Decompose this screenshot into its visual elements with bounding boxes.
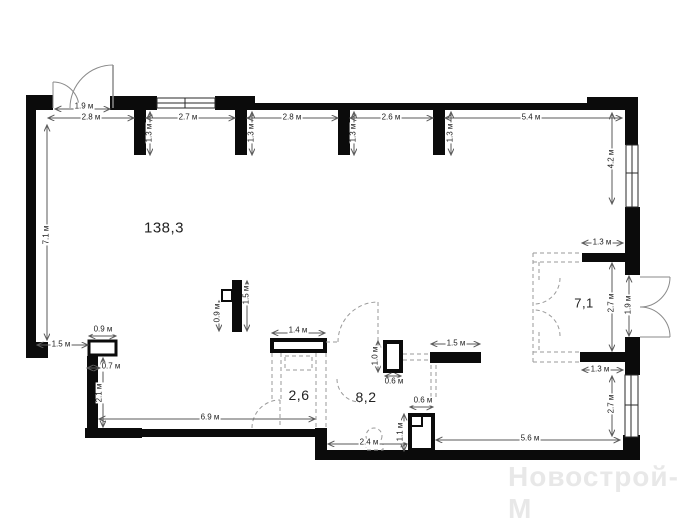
wall-bottom-right [318,450,640,460]
pillar-bottom-box [411,416,422,426]
pillar-center-box [222,290,232,301]
room-area-label-main: 138,3 [144,220,184,237]
wall-stub-4 [433,108,445,155]
floor-plan: 1.9 м 2.8 м 2.7 м 2.8 м 2.6 м 5.4 м 1.3 … [0,0,700,525]
wall-left-bottom-block [26,342,48,358]
pillar-mid [385,342,401,371]
outlined-walls-layer [89,290,433,450]
dimension-label: 1.5 м [243,285,252,306]
dimension-label: 1.3 м [146,123,155,144]
dimension-label: 1.1 м [397,422,406,443]
dimension-label: 5.4 м [521,114,542,123]
dimension-label: 1.9 м [625,295,634,316]
dimension-label: 5.6 м [520,435,541,444]
dimension-label: 4.2 м [608,149,617,170]
wall-stub-2 [235,108,247,155]
wall-top-right-block [587,97,638,110]
dimension-label: 2.8 м [282,114,303,123]
dimension-label: 0.9 м [214,303,223,324]
wall-stub-right-upper [582,253,625,262]
dimension-label: 2.7 м [178,114,199,123]
wall-bottom-left-block [85,428,142,438]
dashed-bathroom-door [252,400,280,428]
window-top [157,98,215,108]
floor-plan-canvas [0,0,700,525]
dimension-label: 2.8 м [81,114,102,123]
wall-left [26,110,36,342]
dimension-label: 0.9 м [93,326,114,335]
dimension-label: 1.5 м [446,340,467,349]
dimension-label: 1.9 м [74,103,95,112]
wall-mid-right [430,352,481,363]
dimension-label: 0.6 м [384,378,405,387]
window-right-lower [625,375,638,437]
window-right-upper [626,145,638,207]
room-area-label-hall: 8,2 [356,389,377,405]
dimension-label: 7.1 м [43,225,52,246]
wall-bottom-left [142,429,318,437]
wall-bathroom-1-4m [272,340,325,351]
dimension-label: 0.6 м [413,397,434,406]
wall-right-a [625,110,638,145]
dimension-label: 1.3 м [590,366,611,375]
dimension-label: 6.9 м [200,414,221,423]
room-area-label-bathroom: 2,6 [289,387,310,403]
dimension-label: 1.3 м [592,239,613,248]
dimension-label: 0.7 м [101,363,122,372]
wall-corner-top-left [26,95,53,110]
dimension-label: 2.6 м [381,114,402,123]
dimension-label: 1.5 м [51,341,72,350]
dimension-label: 1.4 м [288,327,309,336]
wall-right-b [625,207,640,275]
dimension-label: 1.3 м [350,123,359,144]
wall-top-a [110,96,157,110]
right-double-door [640,277,670,337]
pillar-center [232,280,242,332]
dimension-label: 2.7 м [608,293,617,314]
dimension-label: 2.7 м [608,394,617,415]
wall-stub-right-lower [580,352,625,362]
dimension-label: 1.0 м [372,346,381,367]
watermark: Новострой-М [508,461,700,525]
dimension-label: 1.3 м [248,123,257,144]
room-area-label-dressing: 7,1 [574,296,594,311]
dimension-label: 1.3 м [447,123,456,144]
dimension-lines-layer [37,109,629,451]
wall-top-b [215,96,255,110]
dashed-sink [285,356,312,370]
wall-top-c [255,103,587,110]
dimension-label: 2.1 м [96,383,105,404]
wall-right-c [625,337,640,375]
dimension-label: 2.4 м [359,439,380,448]
walls-layer [26,95,640,460]
shaft-box [89,341,116,355]
